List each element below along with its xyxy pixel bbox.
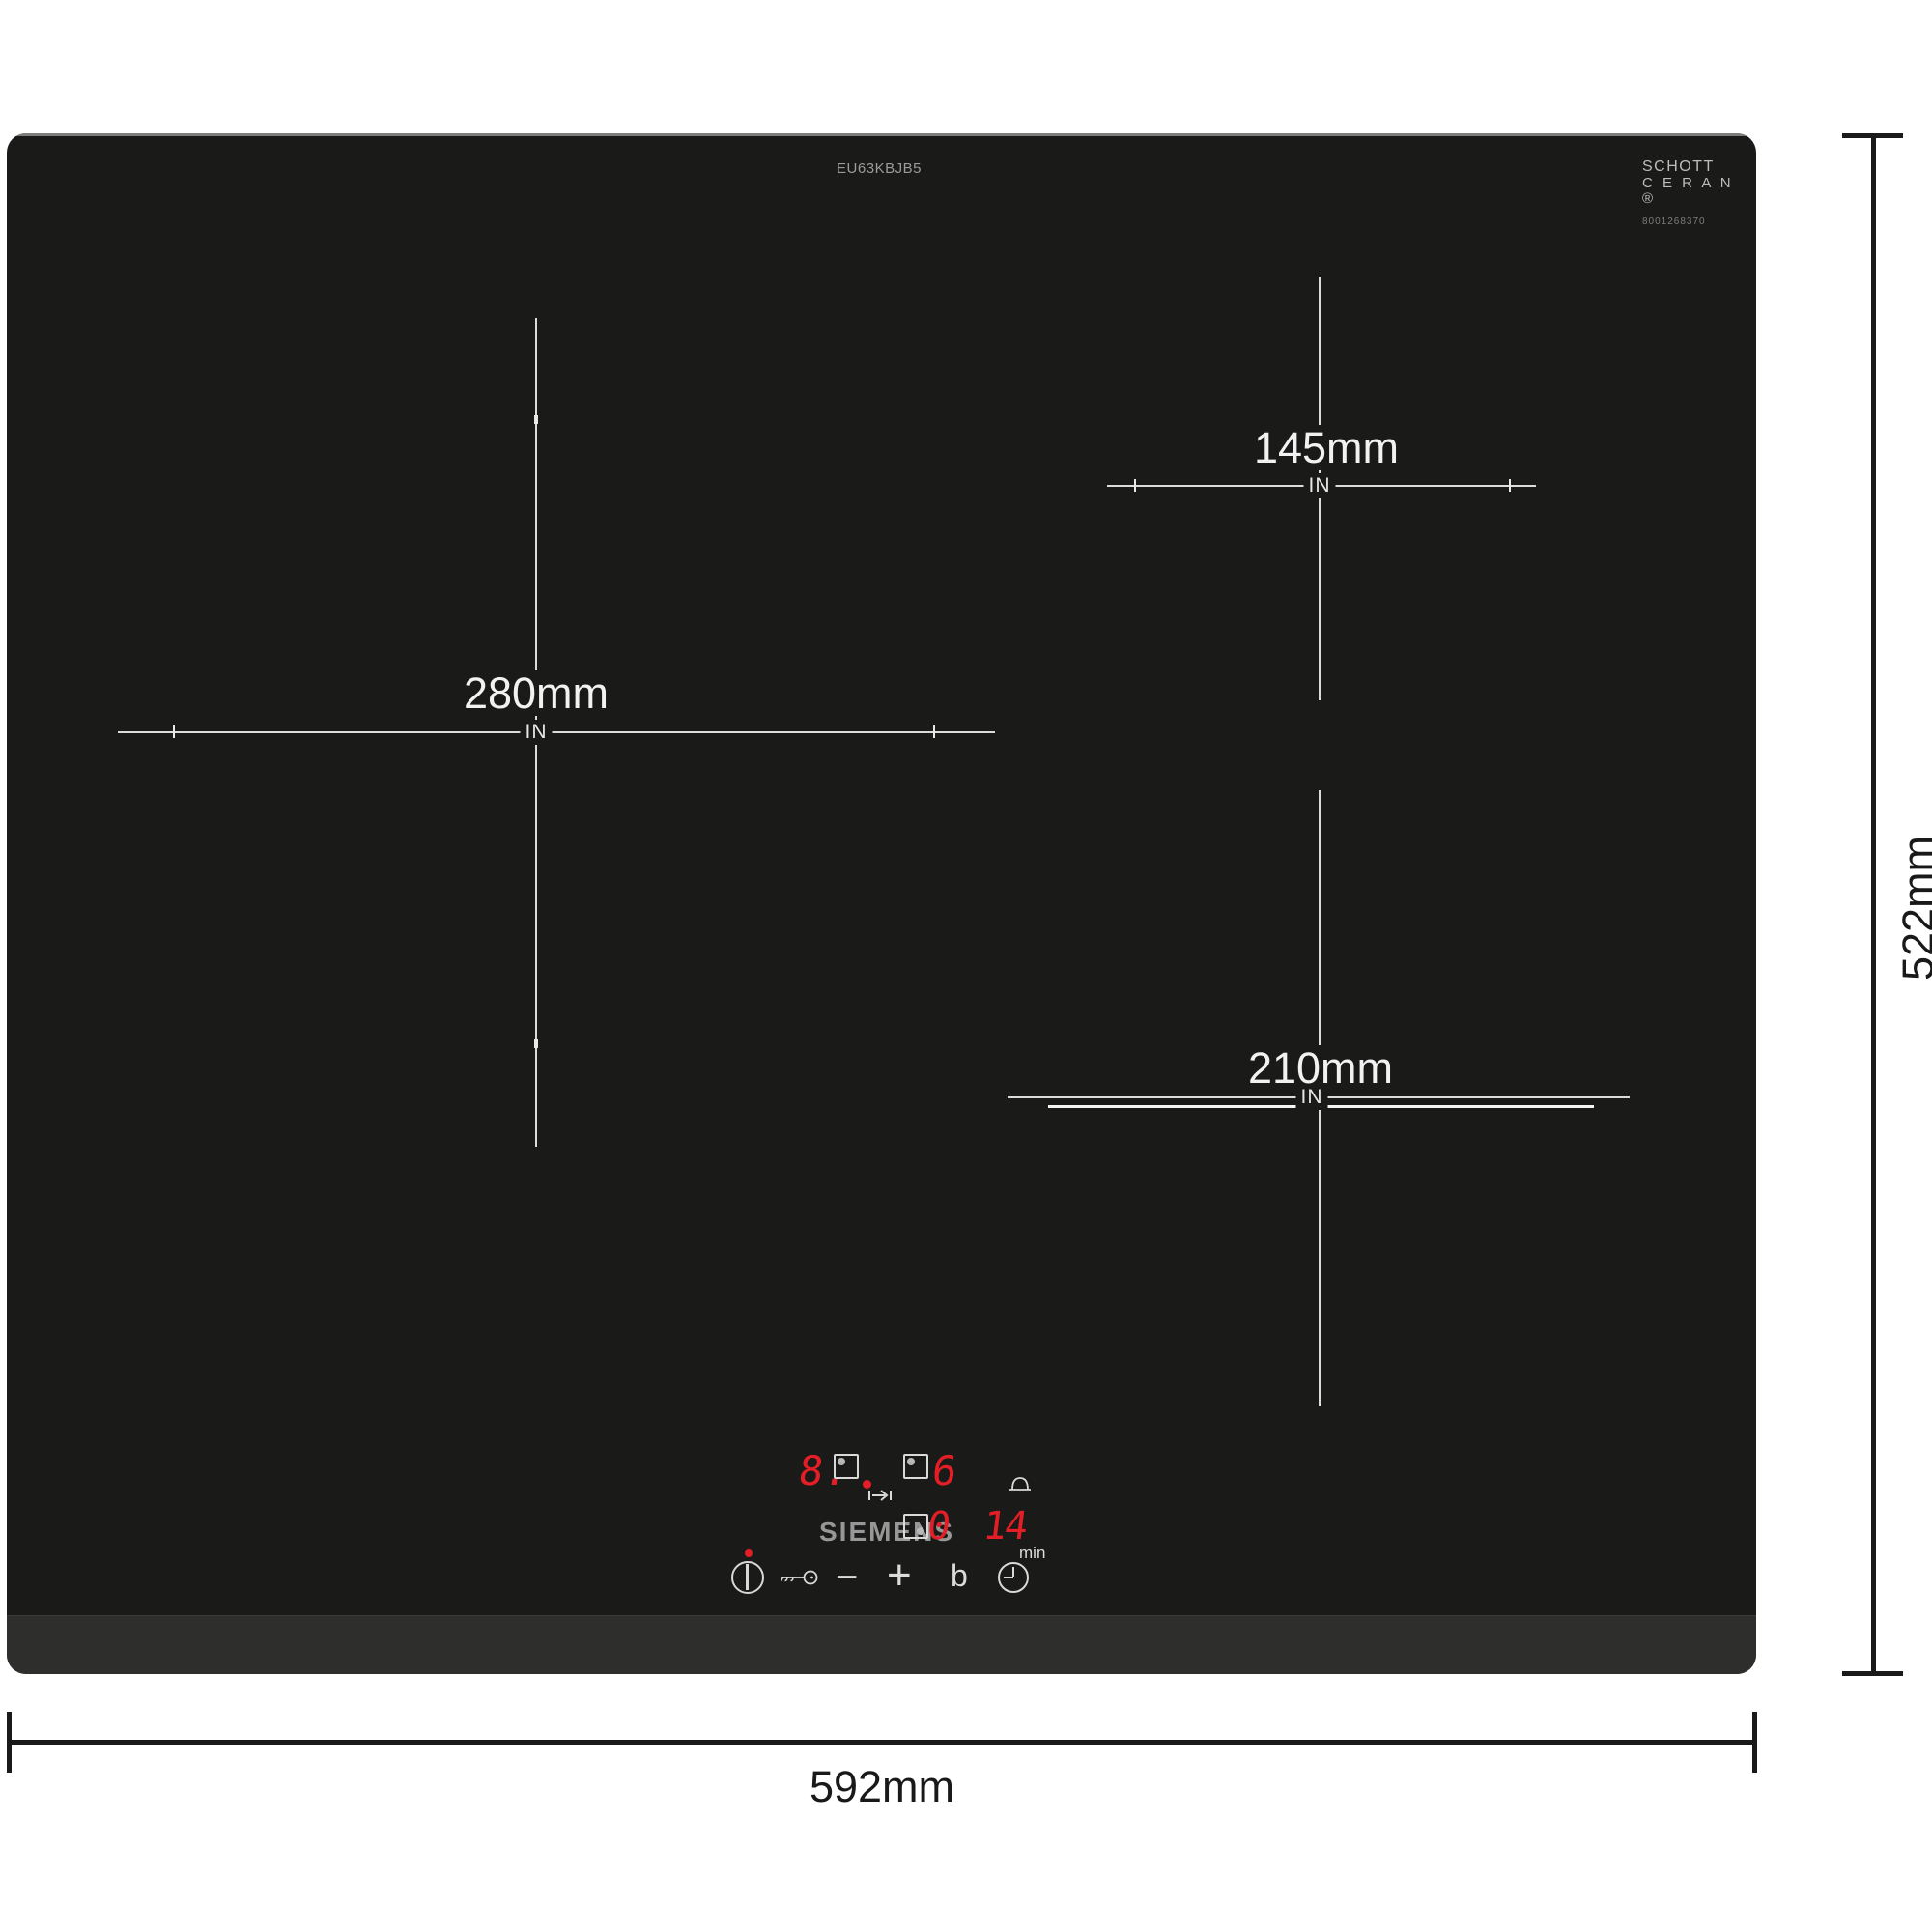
hob-front-strip bbox=[7, 1615, 1756, 1674]
led-timer-zone: 0 bbox=[925, 1507, 953, 1546]
zone-indicator-dot bbox=[917, 1527, 924, 1535]
hob-surface: EU63KBJB5 SCHOTT C E R A N ® 8001268370 … bbox=[7, 133, 1756, 1674]
zone-145-in-marker: IN bbox=[1304, 473, 1336, 498]
width-dimension-tick-left bbox=[7, 1712, 12, 1773]
height-dimension-line bbox=[1871, 133, 1876, 1676]
zone-145-line-tick-right bbox=[1509, 479, 1511, 492]
power-indicator-dot bbox=[745, 1549, 753, 1557]
zone-280-diameter-label: 280mm bbox=[454, 670, 618, 716]
power-icon bbox=[731, 1561, 764, 1594]
schott-serial-number: 8001268370 bbox=[1642, 216, 1748, 227]
zone-210-in-marker: IN bbox=[1296, 1085, 1328, 1110]
zone-280-line-tick-left bbox=[173, 725, 175, 738]
height-dimension-tick-bottom bbox=[1842, 1671, 1903, 1676]
led-timer-minutes-units: 4 bbox=[1003, 1507, 1031, 1546]
boost-control: b bbox=[951, 1560, 968, 1591]
zone-indicator-dot bbox=[907, 1458, 915, 1465]
zone-280-vline-tick-top bbox=[534, 415, 538, 424]
hob-top-edge bbox=[7, 133, 1756, 136]
width-dimension-line bbox=[7, 1740, 1757, 1745]
schott-logo-line1: SCHOTT bbox=[1642, 158, 1748, 176]
zone-145-line-tick-left bbox=[1134, 479, 1136, 492]
led-right-zone-level: 6 bbox=[929, 1451, 958, 1492]
plus-control: + bbox=[887, 1554, 912, 1597]
zone-indicator-bottomright-icon bbox=[903, 1514, 928, 1539]
power-bar bbox=[746, 1564, 749, 1590]
zone-indicator-left-icon bbox=[834, 1454, 859, 1479]
schott-logo-line2: C E R A N ® bbox=[1642, 176, 1748, 208]
model-number-label: EU63KBJB5 bbox=[802, 160, 956, 177]
height-dimension-label: 522mm bbox=[1893, 763, 1932, 1053]
transfer-arrow-icon bbox=[867, 1488, 895, 1503]
zone-indicator-topright-icon bbox=[903, 1454, 928, 1479]
clock-hand-9 bbox=[1004, 1577, 1013, 1578]
siemens-logo: SIEMENS bbox=[761, 1517, 1012, 1548]
zone-280-vline-tick-bottom bbox=[534, 1039, 538, 1048]
width-dimension-tick-right bbox=[1752, 1712, 1757, 1773]
timer-min-unit-label: min bbox=[1019, 1544, 1045, 1563]
bell-icon bbox=[1008, 1474, 1033, 1494]
timer-clock-icon bbox=[998, 1562, 1029, 1593]
height-dimension-tick-top bbox=[1842, 133, 1903, 138]
key-lock-icon bbox=[778, 1567, 820, 1588]
zone-indicator-dot bbox=[838, 1458, 845, 1465]
minus-control: − bbox=[836, 1558, 858, 1597]
width-dimension-label: 592mm bbox=[737, 1762, 1027, 1812]
zone-280-line-tick-right bbox=[933, 725, 935, 738]
product-diagram: EU63KBJB5 SCHOTT C E R A N ® 8001268370 … bbox=[0, 0, 1932, 1932]
schott-ceran-logo: SCHOTT C E R A N ® 8001268370 bbox=[1642, 158, 1748, 227]
zone-280-in-marker: IN bbox=[521, 720, 553, 745]
zone-145-diameter-label: 145mm bbox=[1244, 425, 1408, 470]
zone-280-dimension-line bbox=[118, 731, 995, 733]
